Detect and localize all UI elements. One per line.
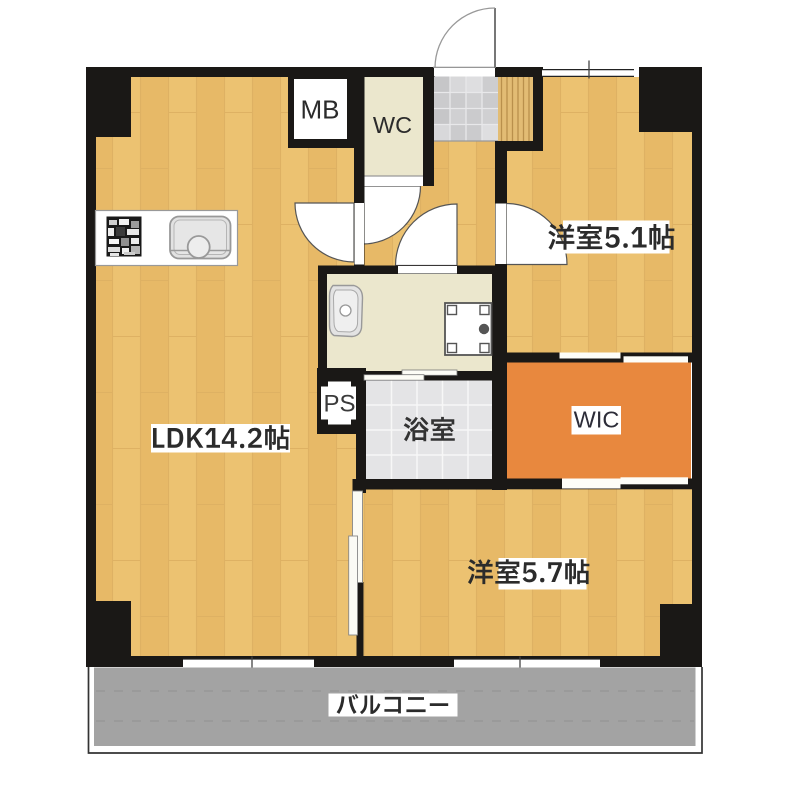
- svg-text:PS: PS: [323, 391, 355, 418]
- svg-text:MB: MB: [301, 94, 340, 124]
- svg-text:WC: WC: [373, 112, 412, 138]
- svg-text:WIC: WIC: [574, 407, 620, 433]
